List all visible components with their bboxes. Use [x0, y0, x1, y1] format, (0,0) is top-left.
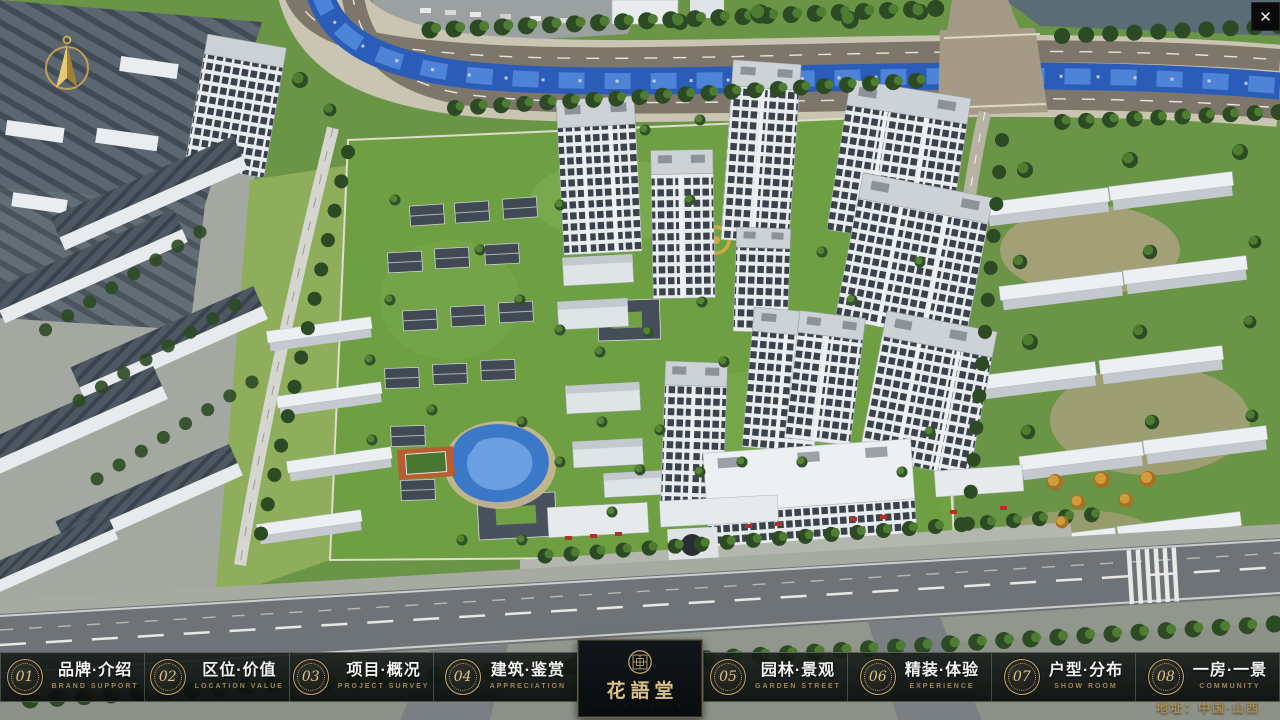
menu-sublabel: BRAND SUPPORT — [52, 683, 139, 690]
menu-badge-05: 05 — [710, 659, 746, 695]
menu-item-floorplan[interactable]: 07 户型·分布SHOW ROOM — [991, 653, 1135, 701]
pond — [444, 421, 556, 509]
menu-group-left: 01 品牌·介绍BRAND SUPPORT 02 区位·价值LOCATION V… — [0, 653, 577, 701]
sports-court — [397, 446, 455, 480]
menu-item-community[interactable]: 08 一房·一景COMMUNITY — [1135, 653, 1280, 701]
project-logo-panel[interactable]: 花語堂 · · · · · · · · · · — [577, 639, 703, 718]
menu-sublabel: SHOW ROOM — [1054, 683, 1118, 690]
menu-label: 区位·价值 — [202, 663, 276, 680]
menu-item-project[interactable]: 03 项目·概况PROJECT SURVEY — [289, 653, 433, 701]
menu-group-right: 05 园林·景观GARDEN STREET 06 精装·体验EXPERIENCE… — [703, 653, 1280, 701]
menu-badge-01: 01 — [7, 659, 43, 695]
menu-sublabel: PROJECT SURVEY — [338, 683, 430, 690]
menu-badge-06: 06 — [860, 659, 896, 695]
project-address: 地址：中国·山西 — [1156, 699, 1260, 716]
seal-emblem-icon — [627, 649, 653, 675]
masterplan-3d-view[interactable] — [0, 0, 1280, 720]
menu-label: 建筑·鉴赏 — [491, 663, 565, 680]
menu-badge-08: 08 — [1148, 659, 1184, 695]
close-button[interactable]: ✕ — [1251, 2, 1280, 31]
project-logo-name: 花語堂 — [601, 676, 678, 703]
project-logo-subtext: · · · · · · · · · · — [597, 704, 683, 709]
menu-label: 户型·分布 — [1049, 663, 1123, 680]
compass-north-icon — [34, 26, 100, 104]
menu-sublabel: GARDEN STREET — [755, 683, 841, 690]
menu-label: 品牌·介绍 — [58, 663, 132, 680]
menu-badge-07: 07 — [1004, 659, 1040, 695]
menu-sublabel: COMMUNITY — [1199, 683, 1260, 690]
menu-label: 一房·一景 — [1193, 663, 1267, 680]
menu-sublabel: EXPERIENCE — [909, 683, 974, 690]
menu-item-interior[interactable]: 06 精装·体验EXPERIENCE — [847, 653, 991, 701]
menu-item-location[interactable]: 02 区位·价值LOCATION VALUE — [144, 653, 288, 701]
menu-item-garden[interactable]: 05 园林·景观GARDEN STREET — [703, 653, 847, 701]
menu-badge-02: 02 — [150, 659, 186, 695]
menu-label: 园林·景观 — [761, 663, 835, 680]
menu-badge-03: 03 — [293, 659, 329, 695]
menu-badge-04: 04 — [445, 659, 481, 695]
menu-item-brand[interactable]: 01 品牌·介绍BRAND SUPPORT — [0, 653, 144, 701]
menu-sublabel: LOCATION VALUE — [195, 683, 284, 690]
menu-sublabel: APPRECIATION — [490, 683, 566, 690]
menu-label: 项目·概况 — [346, 663, 420, 680]
menu-item-architecture[interactable]: 04 建筑·鉴赏APPRECIATION — [433, 653, 577, 701]
close-icon: ✕ — [1259, 8, 1272, 26]
bottom-menu-bar: 01 品牌·介绍BRAND SUPPORT 02 区位·价值LOCATION V… — [0, 652, 1280, 702]
menu-label: 精装·体验 — [905, 663, 979, 680]
